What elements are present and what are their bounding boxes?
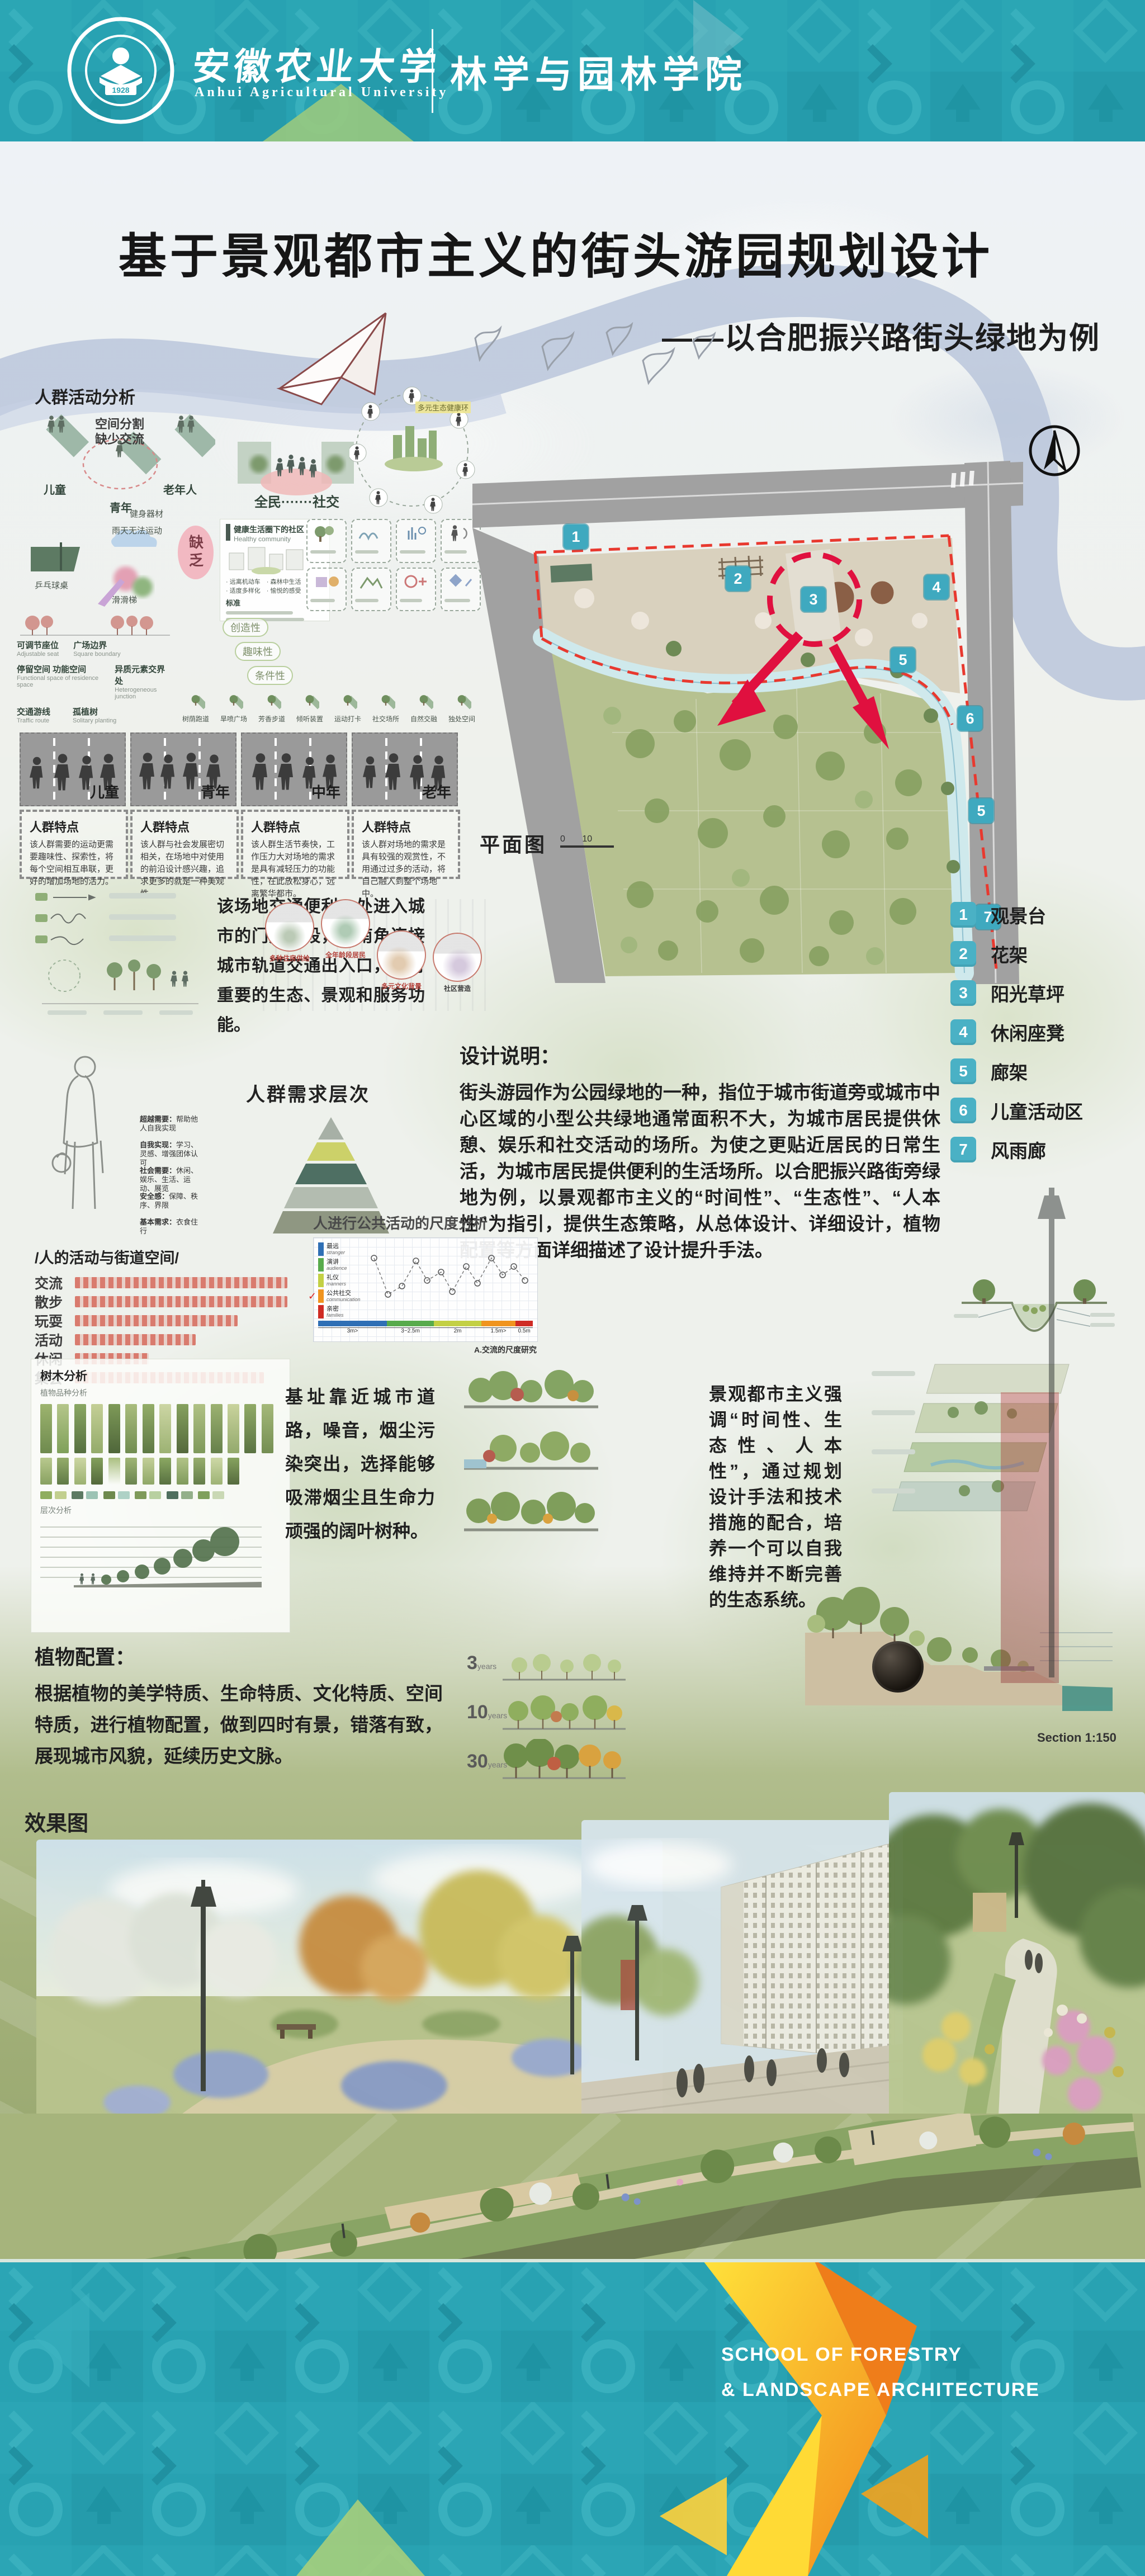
sketch-label-en: Solitary planting: [73, 717, 116, 724]
birds-icon: [458, 316, 721, 394]
legend-chip: 2: [950, 941, 976, 967]
legend-label: 风雨廊: [991, 1136, 1046, 1163]
check-icon: ✓: [308, 1291, 316, 1302]
iso-label: 倾听装置: [292, 714, 328, 724]
plan-marker: 5: [969, 798, 993, 823]
pill-creativity: 创造性: [223, 618, 268, 637]
scale-scatter: [363, 1241, 533, 1320]
scale-chart-footnote: A.交流的尺度研究: [313, 1344, 537, 1355]
age-feature-box-1: 人群特点 该人群与社会发展密切相关，在场地中对使用的前沿设计感兴趣，追求更多的就…: [130, 810, 239, 879]
sketch-label-cn: 可调节座位: [17, 639, 59, 651]
iso-label: 芳香步道: [254, 714, 290, 724]
activity-bar-row: 玩耍: [35, 1311, 297, 1330]
poster: 1928 安徽农业大学 Anhui Agricultural Universit…: [0, 0, 1145, 2576]
feature-title: 人群特点: [362, 817, 450, 835]
sketch-label-en: Square boundary: [73, 651, 120, 658]
plant-panel-sub1: 植物品种分析: [40, 1387, 281, 1398]
street-activity-title: /人的活动与街道空间/: [35, 1246, 297, 1268]
scale-chart-title: 人进行公共活动的尺度分析: [313, 1212, 548, 1233]
scale-legend-item: 亲密families: [318, 1305, 361, 1318]
feature-desc: 该人群生活节奏快，工作压力大对场地的需求是具有减轻压力的功能性，在此放松身心，远…: [251, 839, 339, 900]
plant-strips-row2: [40, 1458, 281, 1485]
age-panel-elder: 老年: [352, 732, 458, 806]
legend-row: 4休闲座凳: [950, 1019, 1083, 1046]
scale-chart: 最远stranger 演讲audience 礼仪manners ✓ 公共社交co…: [313, 1237, 538, 1342]
age-panel-children: 儿童: [20, 732, 126, 806]
pyramid-level-label: 超越需要：帮助他人自我实现: [140, 1115, 200, 1133]
growth-row: 10years: [467, 1688, 635, 1737]
plant-strips-row1: [40, 1404, 281, 1453]
feature-title: 人群特点: [30, 817, 118, 835]
distance-label: 3~2.5m: [387, 1328, 434, 1334]
feature-title: 人群特点: [140, 817, 229, 835]
age-panel-middle: 中年: [241, 732, 347, 806]
legend-row: 7风雨廊: [950, 1136, 1083, 1163]
plant-config-block: 植物配置： 根据植物的美学特质、生命特质、文化特质、空间特质，进行植物配置，做到…: [35, 1641, 443, 1772]
pyramid-level-label: 基本需求：衣食住行: [140, 1218, 200, 1236]
header-divider: [432, 29, 433, 113]
road-sections: [458, 1359, 604, 1543]
analysis-section-label: 人群活动分析: [35, 384, 135, 408]
legend-row: 2花架: [950, 940, 1083, 967]
plan-marker: 2: [726, 566, 750, 591]
activity-bar-row: 散步: [35, 1292, 297, 1311]
activity-bar-row: 活动: [35, 1330, 297, 1349]
university-name-en: Anhui Agricultural University: [195, 85, 448, 100]
sketch-label-en: Traffic route: [17, 717, 50, 724]
rendering-flower-path: [889, 1792, 1145, 2128]
sketch-label-cn: 交通游线: [17, 706, 50, 717]
platform-label-youth: 青年: [110, 499, 132, 515]
plant-config-title: 植物配置：: [35, 1641, 443, 1670]
svg-text:1928: 1928: [112, 86, 129, 94]
activity-bar-row: 交流: [35, 1273, 297, 1292]
scale-tick: 10: [582, 834, 592, 844]
sketch-trees-icon: [17, 614, 173, 636]
pyramid-level-label: 自我实现：学习、灵感、增强团体认可: [140, 1141, 200, 1168]
iso-label: 运动打卡: [330, 714, 366, 724]
equipment-label-2: 健身器材: [130, 508, 163, 519]
legend-chip: 3: [950, 980, 976, 1006]
healthy-title-en: Healthy community: [234, 535, 304, 543]
distance-label: 0.5m: [515, 1328, 533, 1334]
legend-chip: 1: [950, 902, 976, 928]
plan-marker: 6: [958, 706, 982, 731]
plant-layers-sketch: [40, 1519, 262, 1592]
footer-main: SCHOOL OF FORESTRY & LANDSCAPE ARCHITECT…: [0, 2259, 1145, 2576]
scale-legend-item: 最远stranger: [318, 1242, 361, 1256]
idea-card: [306, 519, 347, 563]
legend-label: 休闲座凳: [991, 1019, 1064, 1046]
city-circle-label: 多元文化背景: [377, 981, 426, 991]
age-feature-box-2: 人群特点 该人群生活节奏快，工作压力大对场地的需求是具有减轻压力的功能性，在此放…: [241, 810, 349, 879]
plan-marker: 5: [891, 647, 915, 672]
idea-card: [351, 519, 391, 563]
site-base-text: 基址靠近城市道路，噪音，烟尘污染突出，选择能够吸滞烟尘且生命力顽强的阔叶树种。: [285, 1380, 435, 1548]
eco-cycle-diagram: 多元生态健康环: [349, 386, 475, 514]
age-panel-youth: 青年: [130, 732, 236, 806]
sketch-label-cn: 停留空间 功能空间: [17, 663, 107, 675]
plant-analysis-panel: 树木分析 植物品种分析: [31, 1359, 290, 1633]
footer-school-line1: SCHOOL OF FORESTRY: [721, 2344, 962, 2366]
legend-row: 6儿童活动区: [950, 1097, 1083, 1124]
city-circle-label: 全年龄段居民: [321, 950, 370, 959]
legend-label: 观景台: [991, 901, 1046, 928]
site-plan-drawing: [472, 453, 1023, 984]
sketch-label-en: Functional space of residence space: [17, 675, 107, 688]
feature-desc: 该人群需要的运动更需要趣味性、探索性，将每个空间相互串联，更好的增加场地的活力。: [30, 839, 118, 888]
rendering-park: [36, 1840, 663, 2153]
street-lamp-icon: [1029, 1185, 1073, 1677]
iso-label: 旱喷广场: [216, 714, 252, 724]
distance-label: 2m: [434, 1328, 481, 1334]
footer-school-line2: & LANDSCAPE ARCHITECTURE: [721, 2379, 1040, 2401]
idea-card-grid: [306, 519, 480, 611]
rendering-street: [581, 1820, 903, 2133]
pill-condition: 条件性: [247, 666, 293, 685]
sketch-row: 可调节座位 Adjustable seat 广场边界 Square bounda…: [17, 614, 173, 724]
equipment-label-0: 乒乓球桌: [35, 579, 68, 591]
growth-row: 3years: [467, 1638, 635, 1688]
section-label: Section 1:150: [1037, 1731, 1116, 1745]
needs-pyramid-title: 人群需求层次: [246, 1079, 370, 1107]
sketch-label-en: Adjustable seat: [17, 651, 59, 658]
scale-axis: [318, 1321, 533, 1326]
university-name-cn: 安徽农业大学: [190, 37, 444, 91]
sketch-label-cn: 异质元素交界处: [115, 663, 173, 687]
sketch-label-cn: 孤植树: [73, 706, 116, 717]
scale-legend-item: ✓ 公共社交communication: [318, 1289, 361, 1303]
legend-row: 3阳光草坪: [950, 980, 1083, 1006]
eco-cycle-label: 多元生态健康环: [415, 401, 471, 413]
pyramid-level-label: 安全感：保障、秩序、界限: [140, 1192, 200, 1210]
scale-tick: 0: [560, 834, 565, 844]
legend-chip: 7: [950, 1137, 976, 1162]
city-circle-label: 社区营造: [433, 984, 482, 993]
north-arrow-icon: [1028, 424, 1081, 478]
age-feature-box-3: 人群特点 该人群对场地的需求是具有较强的观赏性，不用通过过多的活动，将自己融入到…: [352, 810, 460, 879]
plan-marker: 3: [801, 587, 826, 612]
legend-label: 廊架: [991, 1058, 1028, 1085]
feature-desc: 该人群对场地的需求是具有较强的观赏性，不用通过过多的活动，将自己融入到整个场地中…: [362, 839, 450, 900]
site-plan: 1 2 3 4 5 6 5 7: [472, 453, 1023, 984]
legend-row: 5廊架: [950, 1058, 1083, 1085]
iso-label: 自然交融: [406, 714, 442, 724]
plan-legend: 1观景台 2花架 3阳光草坪 4休闲座凳 5廊架 6儿童活动区 7风雨廊: [950, 901, 1083, 1175]
plant-swatches: [40, 1489, 281, 1499]
idea-card: [396, 519, 436, 563]
healthy-iso-blocks: [226, 543, 310, 574]
plant-panel-sub2: 层次分析: [40, 1505, 281, 1516]
woman-sketch: [50, 1051, 117, 1225]
iso-label: 树荫跑道: [178, 714, 214, 724]
movement-diagrams: [31, 886, 210, 1026]
equipment-label-1: 雨天无法运动: [112, 524, 162, 536]
sketch-label-cn: 广场边界: [73, 639, 120, 651]
plan-label: 平面图: [480, 829, 547, 858]
scale-analysis-block: 人进行公共活动的尺度分析 最远stranger 演讲audience 礼仪man…: [313, 1212, 548, 1355]
header-band: 1928 安徽农业大学 Anhui Agricultural Universit…: [0, 0, 1145, 141]
city-circle-label: 多种住房供给: [265, 953, 314, 963]
legend-chip: 5: [950, 1058, 976, 1084]
idea-card: [351, 568, 391, 612]
plan-marker: 1: [564, 524, 588, 549]
scale-legend-item: 礼仪manners: [318, 1274, 361, 1287]
idea-card: [306, 568, 347, 612]
sketch-label-en: Heterogeneous junction: [115, 687, 173, 700]
legend-chip: 6: [950, 1098, 976, 1123]
lack-blob: 缺乏: [178, 526, 214, 579]
social-diagram: 全民·······社交: [232, 431, 361, 503]
healthy-title-cn: 健康生活圈下的社区: [234, 524, 304, 535]
distance-label: 1.5m>: [481, 1328, 515, 1334]
design-note-title: 设计说明：: [460, 1040, 940, 1069]
renderings-label: 效果图: [25, 1806, 88, 1837]
iso-label: 社交场所: [368, 714, 404, 724]
age-label: 中年: [311, 781, 340, 802]
terrain-section: [799, 1566, 1124, 1728]
age-label: 青年: [201, 781, 230, 802]
plant-config-body: 根据植物的美学特质、生命特质、文化特质、空间特质，进行植物配置，做到四时有景，错…: [35, 1678, 443, 1772]
growth-row: 30years: [467, 1737, 635, 1786]
age-label: 儿童: [90, 781, 119, 802]
age-label: 老年: [422, 781, 451, 802]
idea-card: [396, 568, 436, 612]
school-name: 林学与园林学院: [450, 45, 747, 98]
age-feature-box-0: 人群特点 该人群需要的运动更需要趣味性、探索性，将每个空间相互串联，更好的增加场…: [20, 810, 128, 879]
callout-space-division: 空间分割缺少交流: [95, 417, 144, 447]
city-vision-collage: 多种住房供给 全年龄段居民 多元文化背景 社区营造: [263, 899, 486, 1011]
distance-label: 3m>: [318, 1328, 387, 1334]
legend-label: 花架: [991, 940, 1028, 967]
sphere-sculpture: [872, 1641, 924, 1693]
pill-fun: 趣味性: [235, 642, 281, 661]
social-label: 全民·······社交: [254, 491, 339, 511]
legend-row: 1观景台: [950, 901, 1083, 928]
university-logo-icon: 1928: [66, 16, 176, 125]
legend-chip: 4: [950, 1019, 976, 1045]
scale-legend-item: 演讲audience: [318, 1258, 361, 1272]
platform-label-elder: 老年人: [163, 481, 197, 497]
equipment-label-3: 滑滑梯: [112, 594, 137, 606]
legend-label: 阳光草坪: [991, 980, 1064, 1006]
lack-label: 缺乏: [186, 535, 206, 570]
legend-label: 儿童活动区: [991, 1097, 1083, 1124]
plan-scale-bar: 0 10: [560, 834, 622, 848]
plant-panel-title: 树木分析: [40, 1367, 281, 1384]
plan-marker: 4: [924, 575, 949, 599]
page-title: 基于景观都市主义的街头游园规划设计: [119, 217, 993, 287]
pyramid-level-label: 社会需要：休闲、娱乐、生活、运动、展览: [140, 1166, 200, 1193]
growth-stages: 3years 10years 30years: [467, 1638, 635, 1786]
iso-strategy-row: 树荫跑道 旱喷广场 芳香步道 倾听装置 运动打卡 社交场所 自然交融 独处空间: [178, 692, 480, 724]
feature-title: 人群特点: [251, 817, 339, 835]
platform-label-children: 儿童: [44, 481, 66, 497]
